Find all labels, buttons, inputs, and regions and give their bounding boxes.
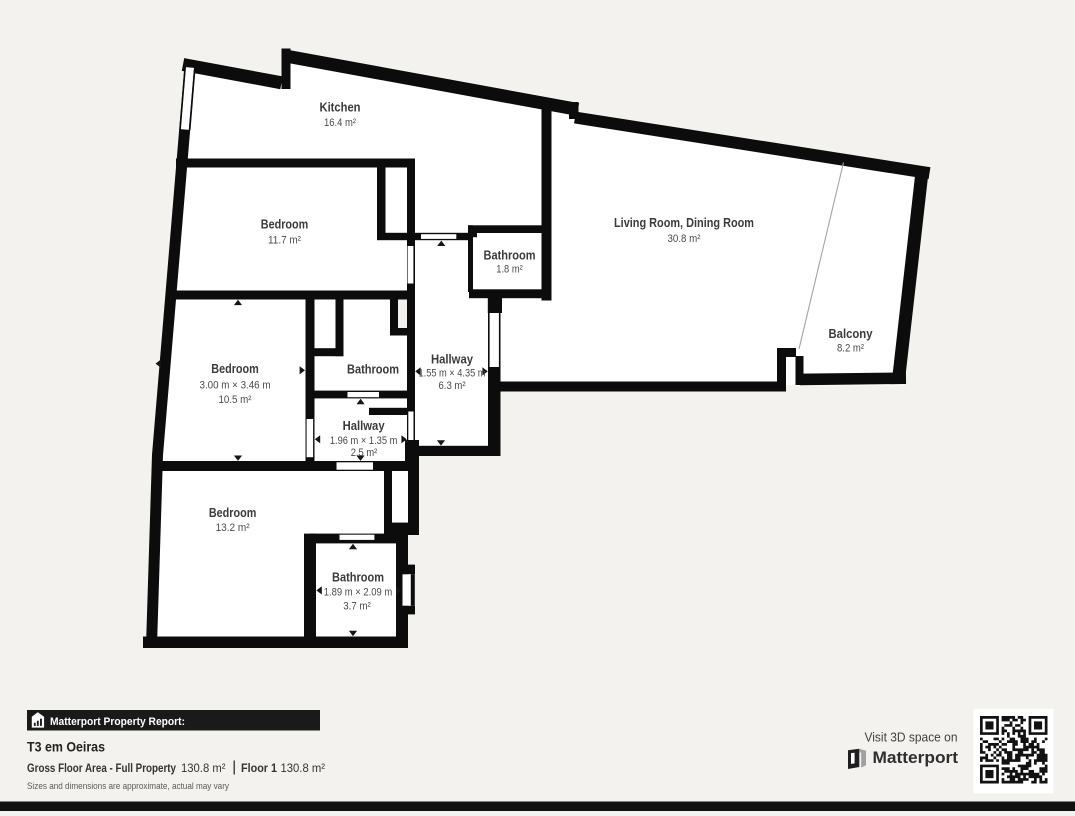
svg-text:13.2 m²: 13.2 m²	[216, 522, 250, 534]
svg-text:Floor 1: Floor 1	[241, 761, 277, 775]
svg-text:Bathroom: Bathroom	[347, 362, 399, 377]
svg-text:11.7 m²: 11.7 m²	[268, 235, 301, 247]
svg-text:Matterport Property Report:: Matterport Property Report:	[50, 716, 185, 728]
svg-text:Matterport: Matterport	[873, 749, 959, 767]
svg-text:130.8 m²: 130.8 m²	[281, 761, 326, 775]
svg-text:16.4 m²: 16.4 m²	[324, 117, 356, 129]
svg-text:Bedroom: Bedroom	[211, 361, 259, 376]
svg-text:2.5 m²: 2.5 m²	[351, 447, 378, 459]
svg-text:Bathroom: Bathroom	[332, 570, 384, 585]
svg-text:Balcony: Balcony	[829, 326, 874, 341]
svg-text:1.8 m²: 1.8 m²	[496, 263, 523, 275]
svg-text:8.2 m²: 8.2 m²	[837, 343, 864, 355]
svg-text:3.00 m × 3.46 m: 3.00 m × 3.46 m	[200, 379, 271, 391]
svg-text:1.55 m × 4.35 m: 1.55 m × 4.35 m	[419, 368, 486, 380]
svg-text:Gross Floor Area - Full Proper: Gross Floor Area - Full Property	[27, 761, 176, 775]
svg-text:Hallway: Hallway	[343, 418, 386, 433]
svg-text:Hallway: Hallway	[431, 351, 474, 366]
svg-text:Kitchen: Kitchen	[320, 100, 361, 115]
svg-text:10.5 m²: 10.5 m²	[219, 394, 252, 406]
svg-text:6.3 m²: 6.3 m²	[439, 380, 466, 392]
svg-text:30.8 m²: 30.8 m²	[668, 233, 701, 245]
svg-text:1.96 m × 1.35 m: 1.96 m × 1.35 m	[330, 435, 398, 447]
svg-text:Bedroom: Bedroom	[261, 217, 309, 232]
svg-text:T3 em Oeiras: T3 em Oeiras	[27, 740, 105, 756]
svg-text:130.8 m²: 130.8 m²	[181, 761, 226, 775]
svg-text:3.7 m²: 3.7 m²	[343, 600, 371, 612]
svg-text:Sizes and dimensions are appro: Sizes and dimensions are approximate, ac…	[27, 781, 229, 792]
svg-text:1.89 m × 2.09 m: 1.89 m × 2.09 m	[324, 587, 393, 599]
svg-text:Bedroom: Bedroom	[209, 505, 257, 520]
svg-text:Bathroom: Bathroom	[484, 247, 536, 262]
svg-text:Living Room, Dining Room: Living Room, Dining Room	[614, 215, 754, 230]
svg-text:Visit 3D space on: Visit 3D space on	[865, 730, 958, 745]
